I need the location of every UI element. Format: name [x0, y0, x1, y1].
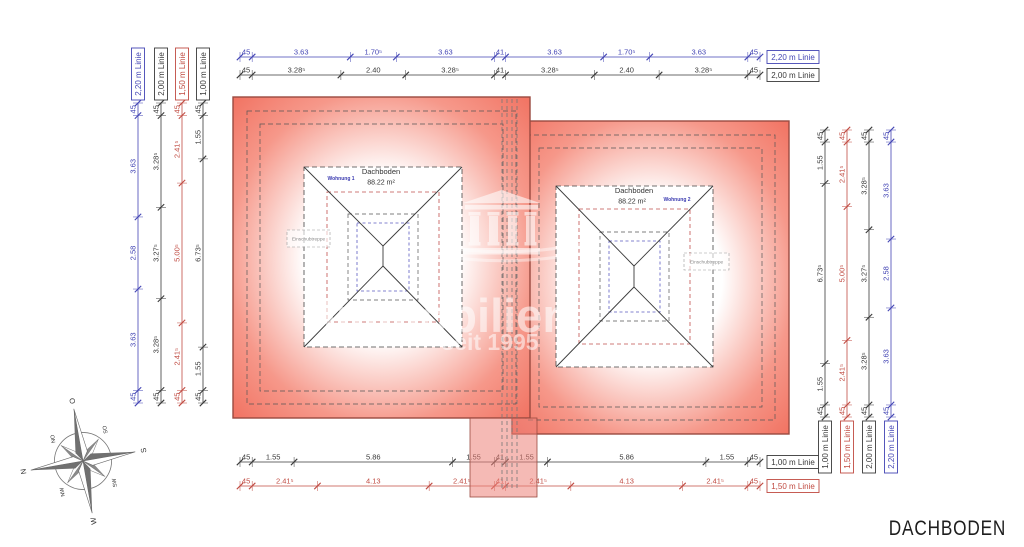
svg-text:4.13: 4.13: [619, 477, 634, 486]
bottom-protrusion: [470, 418, 537, 497]
svg-text:3.28⁵: 3.28⁵: [860, 177, 869, 195]
svg-text:45: 45: [242, 477, 250, 486]
right-stair-label: Einschubtreppe: [690, 260, 724, 266]
svg-text:45: 45: [129, 105, 138, 113]
svg-text:1.55: 1.55: [194, 130, 203, 145]
svg-text:4.13: 4.13: [366, 477, 381, 486]
compass-label-o: O: [67, 397, 77, 404]
watermark-since: seit 1995: [441, 329, 538, 355]
svg-text:1,00 m Linie: 1,00 m Linie: [821, 425, 830, 469]
svg-text:6.73⁵: 6.73⁵: [816, 265, 825, 283]
svg-text:2.58: 2.58: [882, 266, 891, 281]
svg-text:1,00 m Linie: 1,00 m Linie: [199, 52, 208, 96]
svg-text:3.27⁵: 3.27⁵: [860, 265, 869, 283]
svg-text:1.55: 1.55: [720, 453, 735, 462]
svg-text:1,00 m Linie: 1,00 m Linie: [771, 458, 815, 467]
svg-text:3.28⁵: 3.28⁵: [860, 352, 869, 370]
svg-text:3.28⁵: 3.28⁵: [288, 66, 306, 75]
svg-text:3.63: 3.63: [438, 48, 453, 57]
linie-box: 2,20 m Linie: [132, 48, 145, 100]
svg-text:45: 45: [750, 66, 758, 75]
right-wing: Dachboden 88.22 m² Wohnung 2 Einschubtre…: [512, 121, 789, 434]
svg-text:2,00 m Linie: 2,00 m Linie: [865, 425, 874, 469]
svg-text:3.63: 3.63: [547, 48, 562, 57]
svg-text:45: 45: [750, 48, 758, 57]
left-unit-label: Wohnung 1: [327, 176, 354, 182]
svg-text:5.86: 5.86: [619, 453, 634, 462]
svg-text:2,20 m Linie: 2,20 m Linie: [771, 53, 815, 62]
dim-top: 453.631.70⁵3.63413.631.70⁵3.63452,20 m L…: [237, 48, 819, 82]
left-wing: Dachboden 88.22 m² Wohnung 1 Einschubtre…: [233, 97, 530, 418]
svg-text:1,50 m Linie: 1,50 m Linie: [771, 482, 815, 491]
page-title: DACHBODEN: [889, 517, 1006, 541]
svg-text:3.27⁵: 3.27⁵: [152, 244, 161, 262]
svg-text:45: 45: [860, 132, 869, 140]
svg-text:5.00⁵: 5.00⁵: [838, 265, 847, 283]
svg-text:3.63: 3.63: [882, 349, 891, 364]
svg-text:45: 45: [750, 453, 758, 462]
svg-text:2.41⁵: 2.41⁵: [453, 477, 471, 486]
svg-text:2.41⁵: 2.41⁵: [706, 477, 724, 486]
svg-text:2,00 m Linie: 2,00 m Linie: [771, 71, 815, 80]
svg-text:45: 45: [129, 393, 138, 401]
left-room-label: Dachboden: [362, 167, 400, 176]
svg-text:2.40: 2.40: [366, 66, 381, 75]
svg-text:45: 45: [816, 132, 825, 140]
svg-text:5.86: 5.86: [366, 453, 381, 462]
svg-text:2.41⁵: 2.41⁵: [173, 348, 182, 366]
svg-text:3.63: 3.63: [294, 48, 309, 57]
svg-text:45: 45: [194, 393, 203, 401]
svg-text:2.58: 2.58: [129, 246, 138, 261]
svg-text:45: 45: [882, 407, 891, 415]
svg-text:3.63: 3.63: [129, 159, 138, 174]
svg-text:45: 45: [152, 393, 161, 401]
svg-text:5.00⁵: 5.00⁵: [173, 244, 182, 262]
svg-text:3.28⁵: 3.28⁵: [441, 66, 459, 75]
svg-text:45: 45: [750, 477, 758, 486]
svg-text:1.55: 1.55: [194, 361, 203, 376]
svg-text:3.28⁵: 3.28⁵: [541, 66, 559, 75]
svg-text:45: 45: [173, 393, 182, 401]
linie-box: 1,50 m Linie: [176, 48, 189, 100]
right-unit-label: Wohnung 2: [663, 197, 690, 203]
svg-text:45: 45: [194, 105, 203, 113]
svg-text:2,20 m Linie: 2,20 m Linie: [134, 52, 143, 96]
svg-text:45: 45: [860, 407, 869, 415]
svg-text:3.28⁵: 3.28⁵: [152, 153, 161, 171]
svg-text:45: 45: [838, 132, 847, 140]
svg-text:2.41⁵: 2.41⁵: [173, 140, 182, 158]
svg-text:1.55: 1.55: [816, 155, 825, 170]
compass-label-n: N: [19, 468, 29, 475]
linie-box: 1,00 m Linie: [819, 421, 832, 473]
svg-text:2,00 m Linie: 2,00 m Linie: [157, 52, 166, 96]
compass-label-no: NO: [50, 433, 57, 443]
svg-text:45: 45: [882, 132, 891, 140]
svg-text:2.41⁵: 2.41⁵: [276, 477, 294, 486]
svg-text:45: 45: [242, 66, 250, 75]
svg-text:1.70⁵: 1.70⁵: [618, 48, 636, 57]
svg-text:1.55: 1.55: [266, 453, 281, 462]
linie-box: 2,00 m Linie: [863, 421, 876, 473]
compass-label-w: W: [88, 516, 98, 525]
svg-text:1.55: 1.55: [816, 377, 825, 392]
compass-major-points: [22, 400, 145, 523]
compass-label-sw: SW: [111, 477, 119, 488]
svg-text:1,50 m Linie: 1,50 m Linie: [843, 425, 852, 469]
compass-rose: N O S W NO SO SW NW: [8, 386, 159, 535]
svg-text:3.28⁵: 3.28⁵: [695, 66, 713, 75]
svg-text:6.73⁵: 6.73⁵: [194, 244, 203, 262]
right-room-label: Dachboden: [615, 186, 653, 195]
svg-text:3.63: 3.63: [691, 48, 706, 57]
svg-text:45: 45: [816, 407, 825, 415]
linie-box: 1,50 m Linie: [841, 421, 854, 473]
compass-label-so: SO: [102, 424, 109, 434]
svg-text:1,50 m Linie: 1,50 m Linie: [178, 52, 187, 96]
svg-text:3.28⁵: 3.28⁵: [152, 336, 161, 354]
svg-text:2.41⁵: 2.41⁵: [838, 165, 847, 183]
linie-box: 2,20 m Linie: [885, 421, 898, 473]
left-stair-label: Einschubtreppe: [292, 237, 326, 243]
svg-text:41: 41: [496, 48, 504, 57]
linie-box: 1,00 m Linie: [197, 48, 210, 100]
svg-text:45: 45: [242, 453, 250, 462]
dim-right: 451.556.73⁵1.55451,00 m Linie452.41⁵5.00…: [816, 127, 898, 473]
floor-plan-canvas: Dachboden 88.22 m² Wohnung 2 Einschubtre…: [0, 0, 1024, 547]
svg-text:45: 45: [152, 105, 161, 113]
compass-label-s: S: [139, 447, 149, 454]
svg-text:45: 45: [838, 407, 847, 415]
svg-text:45: 45: [242, 48, 250, 57]
dim-left: 453.632.583.63452,20 m Linie453.28⁵3.27⁵…: [129, 48, 210, 406]
svg-text:45: 45: [173, 105, 182, 113]
svg-text:2.41⁵: 2.41⁵: [838, 364, 847, 382]
svg-text:1.70⁵: 1.70⁵: [364, 48, 382, 57]
svg-text:3.63: 3.63: [129, 332, 138, 347]
svg-text:2.40: 2.40: [619, 66, 634, 75]
svg-text:2,20 m Linie: 2,20 m Linie: [887, 425, 896, 469]
svg-text:41: 41: [496, 66, 504, 75]
right-area-label: 88.22 m²: [618, 199, 646, 206]
left-area-label: 88.22 m²: [367, 180, 395, 187]
svg-text:3.63: 3.63: [882, 183, 891, 198]
linie-box: 2,00 m Linie: [155, 48, 168, 100]
compass-label-nw: NW: [59, 486, 67, 497]
